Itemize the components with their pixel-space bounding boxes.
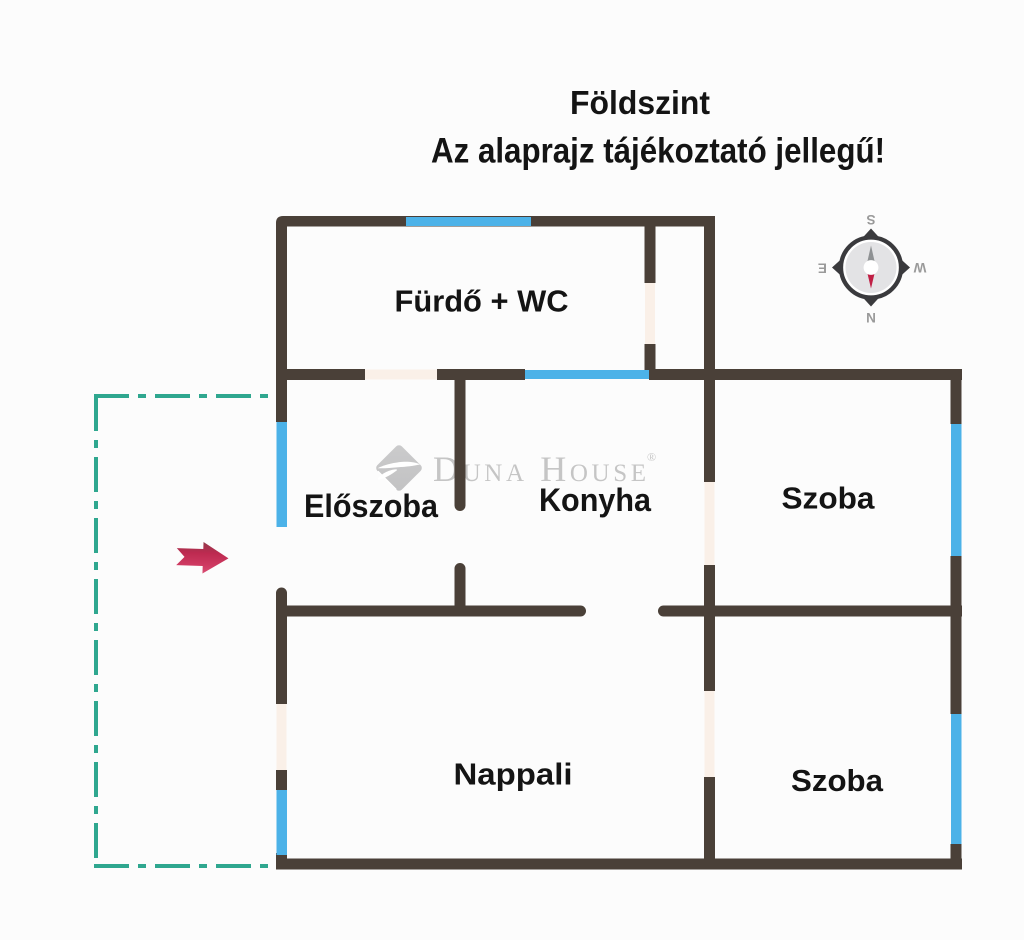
- svg-text:Előszoba: Előszoba: [304, 488, 438, 524]
- svg-text:Konyha: Konyha: [539, 482, 651, 518]
- svg-text:Fürdő + WC: Fürdő + WC: [395, 284, 569, 319]
- svg-text:S: S: [866, 212, 875, 227]
- svg-text:N: N: [866, 310, 876, 325]
- svg-text:Szoba: Szoba: [791, 763, 884, 798]
- svg-text:Az alaprajz tájékoztató jelleg: Az alaprajz tájékoztató jellegű!: [431, 132, 885, 171]
- svg-text:Földszint: Földszint: [570, 84, 710, 121]
- svg-text:®: ®: [647, 450, 656, 464]
- svg-text:E: E: [818, 260, 827, 275]
- svg-text:Nappali: Nappali: [454, 757, 573, 792]
- svg-text:W: W: [913, 260, 926, 275]
- svg-text:Szoba: Szoba: [782, 481, 876, 516]
